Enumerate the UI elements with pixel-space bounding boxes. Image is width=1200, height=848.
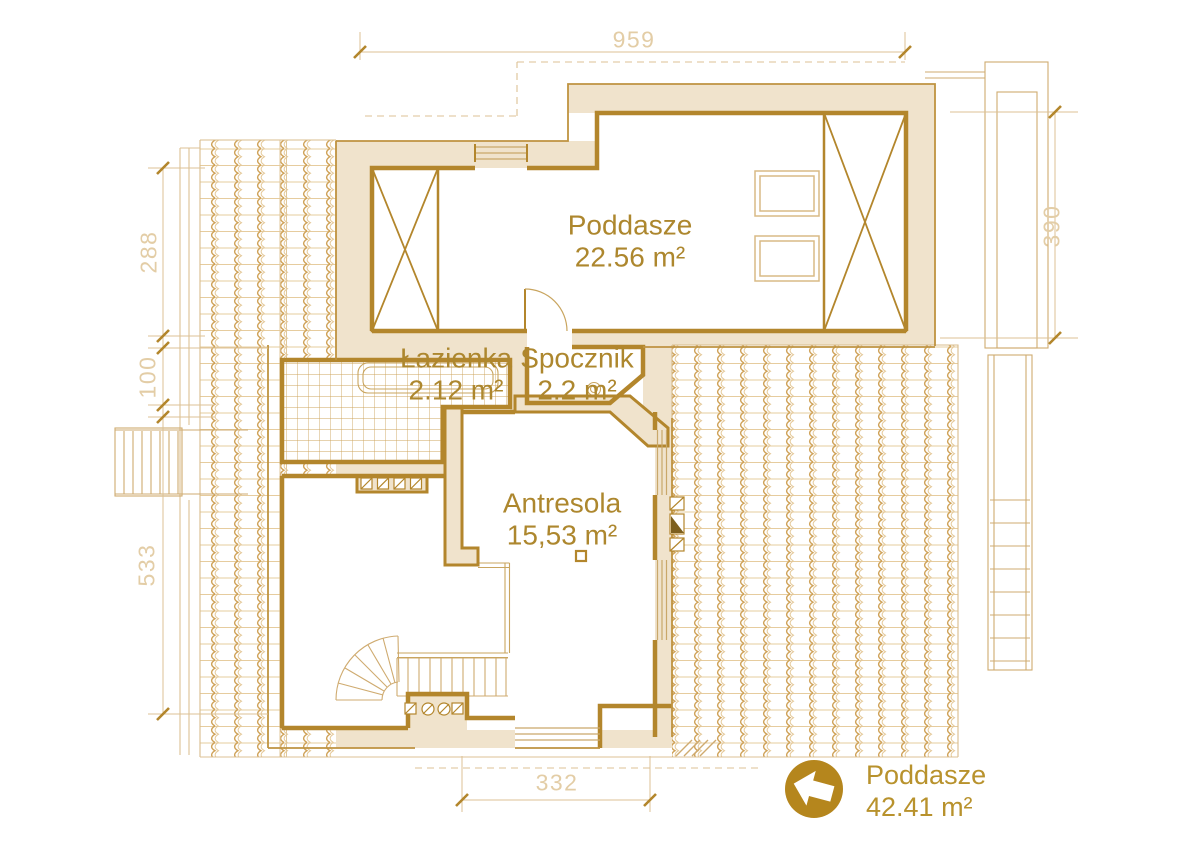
room-area: 15,53 m² <box>503 519 621 551</box>
room-name: Łazienka <box>400 342 512 374</box>
floor-legend-name: Poddasze <box>866 760 986 792</box>
right-gutter <box>988 355 1032 670</box>
dimension-right: 390 <box>1039 205 1066 248</box>
room-name: Spocznik <box>520 342 634 374</box>
floorplan-drawing <box>0 0 1200 848</box>
floor-legend-area: 42.41 m² <box>866 792 986 824</box>
room-area: 2.2 m² <box>520 374 634 406</box>
dimension-bottom: 332 <box>536 770 579 797</box>
floor-legend: Poddasze 42.41 m² <box>866 760 986 824</box>
dimension-left-lower: 533 <box>134 544 161 587</box>
room-name: Poddasze <box>568 209 693 241</box>
room-area: 2.12 m² <box>400 374 512 406</box>
room-antresola-floor <box>445 412 655 730</box>
room-name: Antresola <box>503 487 621 519</box>
room-area: 22.56 m² <box>568 241 693 273</box>
dimension-left-upper: 288 <box>136 231 163 274</box>
floor-nav-badge[interactable] <box>785 760 843 818</box>
room-label-spocznik: Spocznik 2.2 m² <box>520 342 634 405</box>
room-label-antresola: Antresola 15,53 m² <box>503 487 621 550</box>
dimension-top: 959 <box>613 27 656 54</box>
room-label-lazienka: Łazienka 2.12 m² <box>400 342 512 405</box>
roof-area-right <box>672 345 958 757</box>
floorplan-page: Poddasze 22.56 m² Łazienka 2.12 m² Spocz… <box>0 0 1200 848</box>
room-label-poddasze: Poddasze 22.56 m² <box>568 209 693 272</box>
right-dormer <box>925 62 1048 348</box>
dimension-left-mid: 100 <box>135 356 162 399</box>
